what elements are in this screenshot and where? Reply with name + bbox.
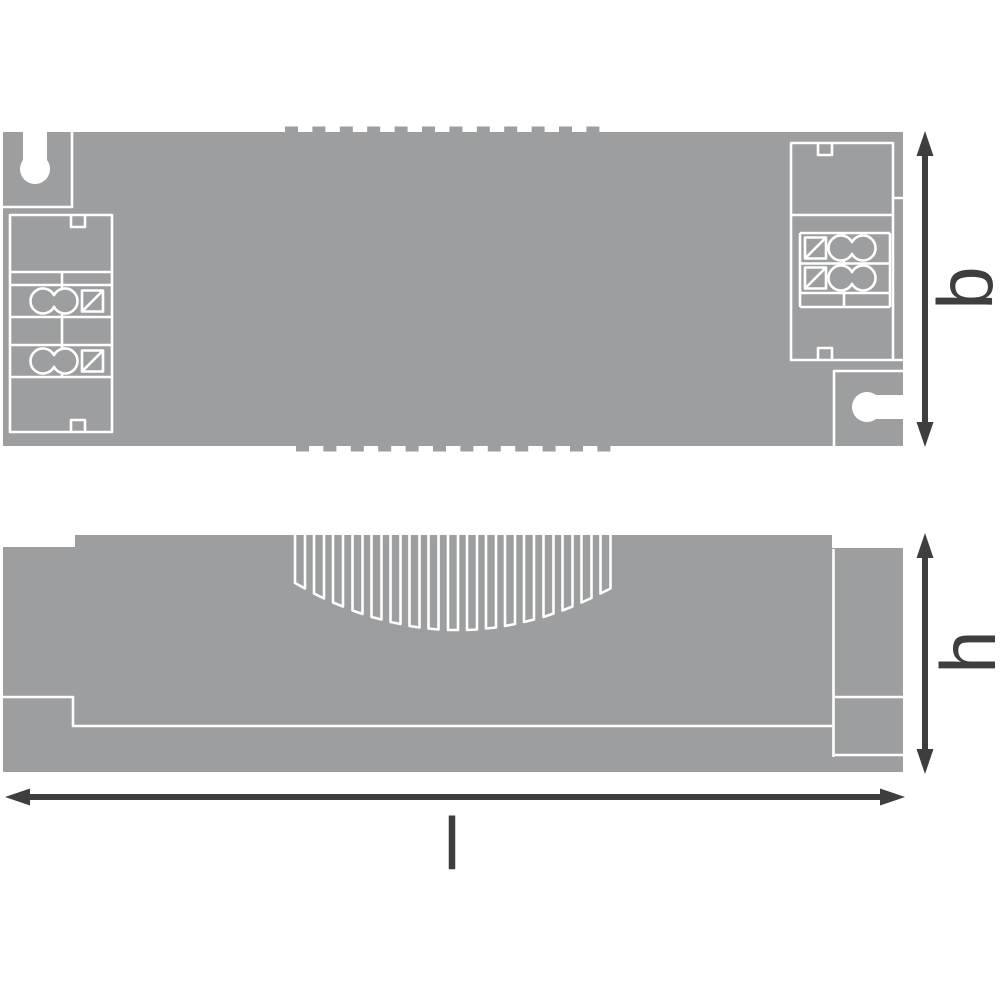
wire-clamp-symbol [805,238,826,259]
side-view-body [3,535,903,772]
dimension-b: b [917,131,1000,447]
arrowhead-up [917,131,934,156]
wire-clamp-symbol [805,268,826,289]
mounting-keyhole-bottom-right [852,392,905,422]
mounting-keyhole-top-left [20,130,50,184]
arrowhead-up [917,533,934,558]
technical-drawing-page: b [0,0,1000,1000]
arrowhead-down [917,749,934,774]
wire-clamp-symbol [82,351,103,372]
dimension-label-h: h [924,630,1000,673]
arrowhead-left [5,789,30,806]
dimension-label-l: l [444,803,460,886]
top-view-body [3,132,903,446]
dimension-label-b: b [921,266,1000,309]
side-view: h [3,533,1000,774]
arrowhead-down [917,422,934,447]
dimension-l: l [5,789,905,886]
dimension-drawing: b [0,0,1000,1000]
arrowhead-right [880,789,905,806]
top-view: b [3,127,1000,452]
wire-clamp-symbol [82,291,103,312]
dimension-h: h [917,533,1000,774]
